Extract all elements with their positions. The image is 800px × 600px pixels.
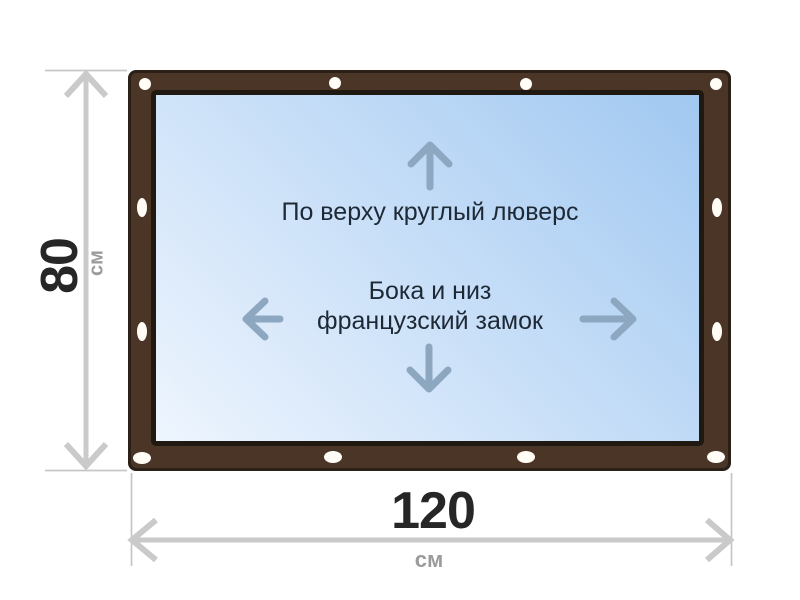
grommet-top-4 xyxy=(710,78,722,90)
grommet-bottom-4 xyxy=(707,451,725,463)
product-diagram: По верху круглый люверс Бока и низ франц… xyxy=(0,0,800,600)
grommet-bottom-1 xyxy=(133,452,151,464)
grommet-right-2 xyxy=(712,322,722,341)
grommet-bottom-3 xyxy=(517,451,535,463)
grommet-left-1 xyxy=(137,198,147,217)
sides-bottom-note: Бока и низ французский замок xyxy=(157,276,703,336)
width-dimension-value: 120 xyxy=(391,481,475,541)
width-dimension-unit: см xyxy=(415,547,444,573)
grommet-left-2 xyxy=(137,322,147,341)
grommet-top-2 xyxy=(329,77,341,89)
sides-bottom-note-line2: французский замок xyxy=(157,306,703,336)
grommet-top-3 xyxy=(520,78,532,90)
height-dimension-unit: см xyxy=(86,250,109,276)
top-edge-note: По верху круглый люверс xyxy=(157,197,703,227)
tarpaulin-frame xyxy=(128,70,731,471)
grommet-top-1 xyxy=(139,78,151,90)
height-dimension-value: 80 xyxy=(30,238,90,294)
transparent-window-panel xyxy=(151,90,704,446)
grommet-bottom-2 xyxy=(324,451,342,463)
grommet-right-1 xyxy=(712,198,722,217)
sides-bottom-note-line1: Бока и низ xyxy=(157,276,703,306)
